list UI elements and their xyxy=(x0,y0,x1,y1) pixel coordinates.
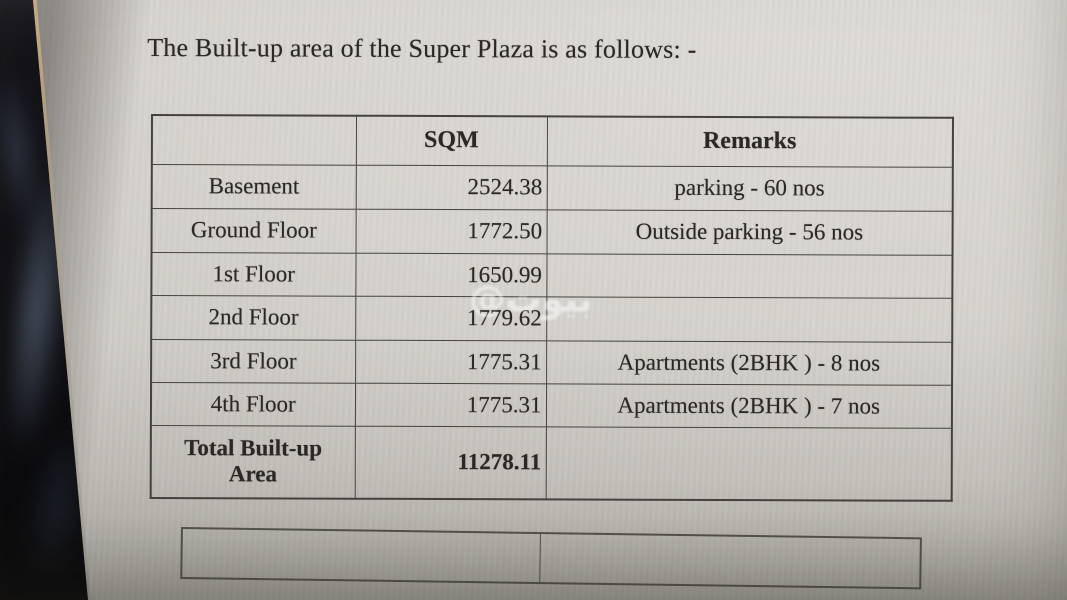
table-row-ground-floor: Ground Floor 1772.50 Outside parking - 5… xyxy=(152,208,953,255)
photographed-document: The Built-up area of the Super Plaza is … xyxy=(0,0,1067,600)
remarks-cell xyxy=(546,426,952,500)
remarks-cell: Apartments (2BHK ) - 8 nos xyxy=(546,340,952,384)
floor-label-cell: 1st Floor xyxy=(151,252,355,296)
empty-cell xyxy=(540,534,920,587)
sqm-value-cell: 1775.31 xyxy=(355,383,546,427)
remarks-cell xyxy=(546,296,952,341)
table-row-basement: Basement 2524.38 parking - 60 nos xyxy=(152,164,953,211)
header-sqm-cell: SQM xyxy=(356,116,547,166)
floor-label-cell: Basement xyxy=(152,164,356,209)
remarks-cell: Outside parking - 56 nos xyxy=(547,209,953,254)
remarks-cell: Apartments (2BHK ) - 7 nos xyxy=(546,383,952,427)
document-page: The Built-up area of the Super Plaza is … xyxy=(0,0,1067,600)
table-row-3rd-floor: 3rd Floor 1775.31 Apartments (2BHK ) - 8… xyxy=(151,339,952,385)
table-header-row: SQM Remarks xyxy=(152,115,953,167)
total-value-cell: 11278.11 xyxy=(355,426,546,500)
header-remarks-cell: Remarks xyxy=(547,116,953,166)
remarks-cell: parking - 60 nos xyxy=(547,165,953,210)
bayut-watermark: @بيوت xyxy=(469,279,592,320)
floor-label-cell: 4th Floor xyxy=(151,382,355,426)
table-row-total: Total Built-up Area 11278.11 xyxy=(151,425,952,501)
sqm-value-cell: 1772.50 xyxy=(356,209,547,254)
header-floor-cell xyxy=(152,115,356,165)
empty-cell xyxy=(182,529,541,582)
total-label-cell: Total Built-up Area xyxy=(151,425,355,499)
remarks-cell xyxy=(546,253,952,297)
floor-label-cell: Ground Floor xyxy=(152,208,356,253)
table-row-4th-floor: 4th Floor 1775.31 Apartments (2BHK ) - 7… xyxy=(151,382,952,428)
empty-table xyxy=(180,527,922,589)
floor-label-cell: 3rd Floor xyxy=(151,339,355,383)
sqm-value-cell: 1775.31 xyxy=(355,340,546,384)
sqm-value-cell: 2524.38 xyxy=(356,165,547,210)
document-title: The Built-up area of the Super Plaza is … xyxy=(147,33,696,65)
floor-label-cell: 2nd Floor xyxy=(151,295,355,340)
